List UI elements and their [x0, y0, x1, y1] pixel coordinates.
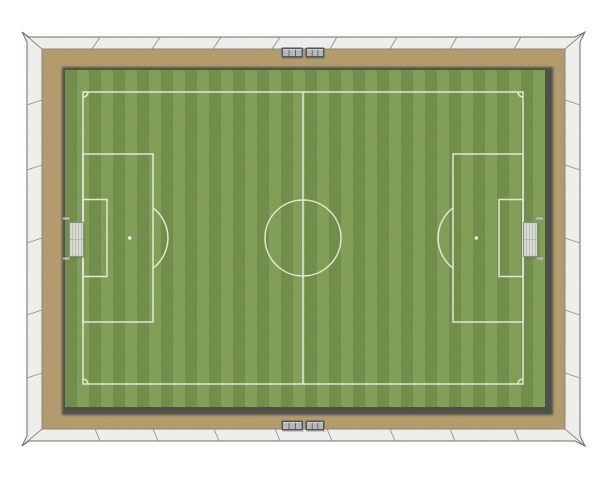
- bench-highlight: [283, 49, 302, 50]
- stadium-render: [0, 0, 600, 500]
- bench-top-left: [282, 48, 305, 60]
- penalty-spot-left: [128, 236, 131, 239]
- bench-shadow: [283, 58, 305, 60]
- grass-texture: [65, 70, 545, 407]
- bench-shadow: [307, 58, 326, 60]
- bench-highlight: [307, 422, 323, 423]
- bench-shadow: [283, 431, 305, 433]
- bench-bottom-left: [282, 421, 305, 433]
- goal-support-left-top: [63, 218, 70, 220]
- penalty-spot-right: [475, 236, 478, 239]
- bench-highlight: [283, 422, 302, 423]
- bench-top-right: [306, 48, 326, 60]
- bench-bottom-right: [306, 421, 326, 433]
- bench-highlight: [307, 49, 323, 50]
- goal-support-left-bottom: [63, 258, 70, 260]
- field-scene-svg: [0, 0, 600, 500]
- goal-support-right-top: [537, 218, 544, 220]
- bench-shadow: [307, 431, 326, 433]
